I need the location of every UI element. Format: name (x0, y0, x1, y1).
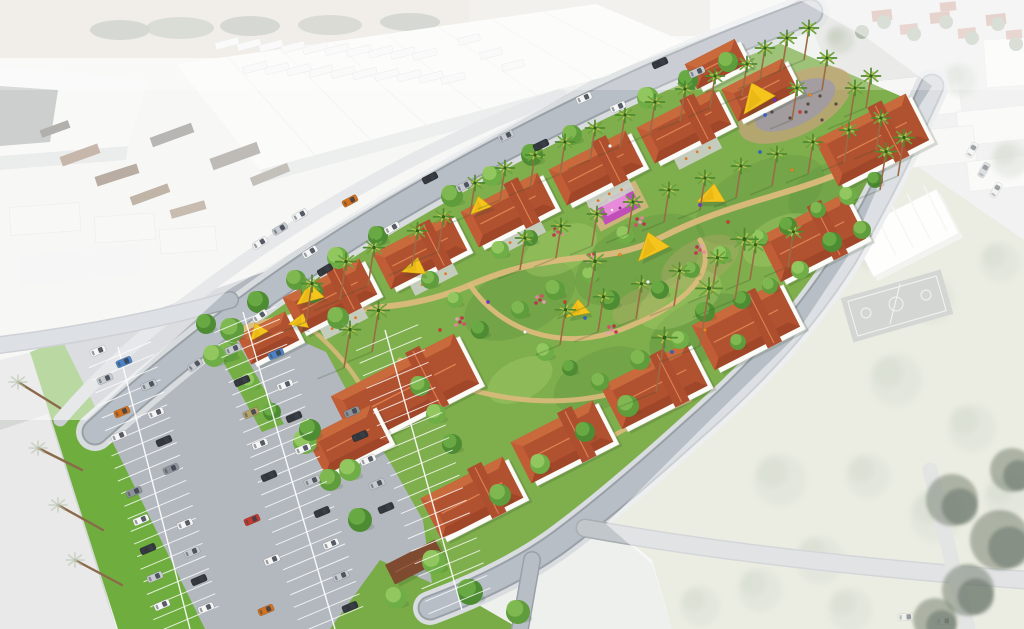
palm-crown (640, 282, 643, 285)
flower-cluster (535, 295, 539, 299)
palm-crown (713, 74, 716, 77)
tree-canopy-highlight (447, 292, 458, 303)
tree-canopy-highlight (531, 454, 545, 468)
dark-tree-canopy (958, 578, 994, 614)
palm-crown (653, 100, 656, 103)
palm-crown (593, 126, 596, 129)
flower-cluster (462, 322, 466, 326)
palm-crown (595, 212, 598, 215)
flower-cluster (458, 320, 462, 324)
tree-canopy-highlight (791, 261, 804, 274)
palm-crown (564, 308, 567, 311)
palm-crown (602, 295, 605, 298)
palm-crown (775, 152, 778, 155)
palm-crown (663, 336, 667, 340)
plaza-table (820, 118, 823, 121)
palm-crown (745, 62, 748, 65)
palm-crown (348, 328, 351, 331)
palm-crown (763, 46, 766, 49)
flower-cluster (460, 316, 464, 320)
flower-cluster (454, 323, 458, 327)
tree-canopy-highlight (779, 217, 792, 230)
person (758, 150, 761, 153)
tree-canopy-highlight (507, 600, 524, 617)
palm-crown (372, 246, 375, 249)
person (608, 144, 611, 147)
playground-shape (619, 207, 622, 210)
palm-crown (807, 26, 810, 29)
flower-cluster (695, 245, 699, 249)
palm-crown (795, 86, 798, 89)
plaza-table (834, 102, 837, 105)
person (763, 113, 766, 116)
palm-crown (742, 237, 746, 241)
tree-canopy-highlight (546, 280, 560, 294)
tree-canopy-highlight (491, 241, 504, 254)
palm-crown (442, 215, 445, 218)
flower-cluster (614, 330, 618, 334)
palm-crown (683, 87, 686, 90)
person (563, 300, 566, 303)
palm-crown (785, 36, 788, 39)
tree-canopy-highlight (328, 307, 343, 322)
tree-canopy-highlight (490, 484, 505, 499)
tree-canopy-highlight (651, 281, 664, 294)
palm-crown (559, 224, 562, 227)
flower-cluster (635, 217, 639, 221)
flower-cluster (607, 325, 611, 329)
tree-canopy-highlight (823, 232, 837, 246)
flower-cluster (640, 216, 644, 220)
tree-canopy-highlight (423, 550, 440, 567)
palm-crown (902, 136, 905, 139)
tree-canopy-highlight (483, 166, 497, 180)
tree-canopy-highlight (867, 172, 878, 183)
palm-crown (869, 74, 872, 77)
flower-cluster (694, 251, 698, 255)
palm-crown (344, 260, 347, 263)
tree-canopy-highlight (287, 270, 301, 284)
plaza-table (804, 110, 807, 113)
tree-canopy-highlight (719, 52, 733, 66)
person (438, 328, 441, 331)
tree-canopy-highlight (762, 278, 773, 289)
dark-tree-canopy (942, 488, 978, 524)
palm-crown (563, 140, 566, 143)
tree-canopy-highlight (386, 587, 401, 602)
tree-canopy-highlight (300, 419, 315, 434)
tree-canopy-highlight (340, 459, 355, 474)
tree-canopy-highlight (576, 422, 590, 436)
palm-crown (879, 116, 882, 119)
tree-canopy-highlight (591, 373, 604, 386)
plaza-table (818, 94, 821, 97)
flower-cluster (552, 233, 556, 237)
tree-canopy-highlight (349, 508, 366, 525)
tree-canopy-highlight (853, 221, 866, 234)
person (670, 350, 673, 353)
palm-crown (703, 176, 706, 179)
palm-crown (667, 188, 670, 191)
flower-cluster (634, 223, 638, 227)
flower-cluster (542, 300, 546, 304)
flower-cluster (638, 220, 642, 224)
person (486, 300, 489, 303)
person (808, 93, 811, 96)
car-windshield (906, 614, 911, 620)
palm-crown (716, 256, 719, 259)
playground-shape (611, 209, 613, 211)
person (698, 203, 701, 206)
tree-canopy-highlight (197, 314, 211, 328)
person (726, 220, 729, 223)
tree-canopy-highlight (511, 301, 524, 314)
flower-cluster (606, 331, 610, 335)
car-rear-glass (899, 615, 902, 620)
aerial-rendering-stage (0, 0, 1024, 629)
flower-cluster (538, 298, 542, 302)
palm-crown (754, 243, 757, 246)
flower-cluster (702, 250, 706, 254)
tree-canopy-highlight (839, 187, 852, 200)
palm-crown (523, 236, 526, 239)
palm-crown (884, 150, 887, 153)
tree-canopy-highlight (369, 226, 383, 240)
tree-canopy-highlight (443, 434, 457, 448)
palm-crown (707, 286, 711, 290)
tree-canopy-highlight (204, 345, 219, 360)
palm-crown (811, 140, 814, 143)
person (618, 253, 621, 256)
flower-cluster (455, 317, 459, 321)
tree-canopy-highlight (631, 350, 645, 364)
palm-crown (825, 56, 828, 59)
flower-cluster (642, 222, 646, 226)
palm-crown (853, 86, 856, 89)
plaza-table (806, 102, 809, 105)
flower-cluster (534, 301, 538, 305)
car (898, 613, 914, 621)
plaza-table (788, 116, 791, 119)
palm-crown (739, 164, 742, 167)
person (773, 98, 776, 101)
palm-crown (473, 181, 476, 184)
palm-crown (623, 113, 626, 116)
site-plan-aerial-rendering (0, 0, 1024, 629)
palm-crown (533, 153, 536, 156)
tree-canopy-highlight (471, 321, 484, 334)
palm-crown (377, 309, 381, 313)
tree-canopy-highlight (810, 202, 821, 213)
palm-crown (678, 269, 681, 272)
palm-crown (847, 128, 850, 131)
person (703, 328, 706, 331)
dark-tree (926, 474, 978, 526)
tree-canopy-highlight (320, 469, 335, 484)
palm-crown (593, 259, 597, 263)
flower-cluster (698, 248, 702, 252)
palm-crown (792, 230, 795, 233)
palm-crown (503, 166, 506, 169)
flower-cluster (700, 244, 704, 248)
palm-crown (310, 282, 313, 285)
person (790, 168, 793, 171)
tree-canopy-highlight (248, 291, 263, 306)
person (583, 316, 586, 319)
palm-crown (631, 200, 634, 203)
tree-canopy-highlight (442, 185, 457, 200)
tree-canopy-highlight (730, 334, 741, 345)
tree-canopy-highlight (562, 360, 573, 371)
person (523, 330, 526, 333)
person (798, 110, 801, 113)
palm-crown (416, 229, 419, 232)
person (646, 280, 649, 283)
flower-cluster (540, 294, 544, 298)
